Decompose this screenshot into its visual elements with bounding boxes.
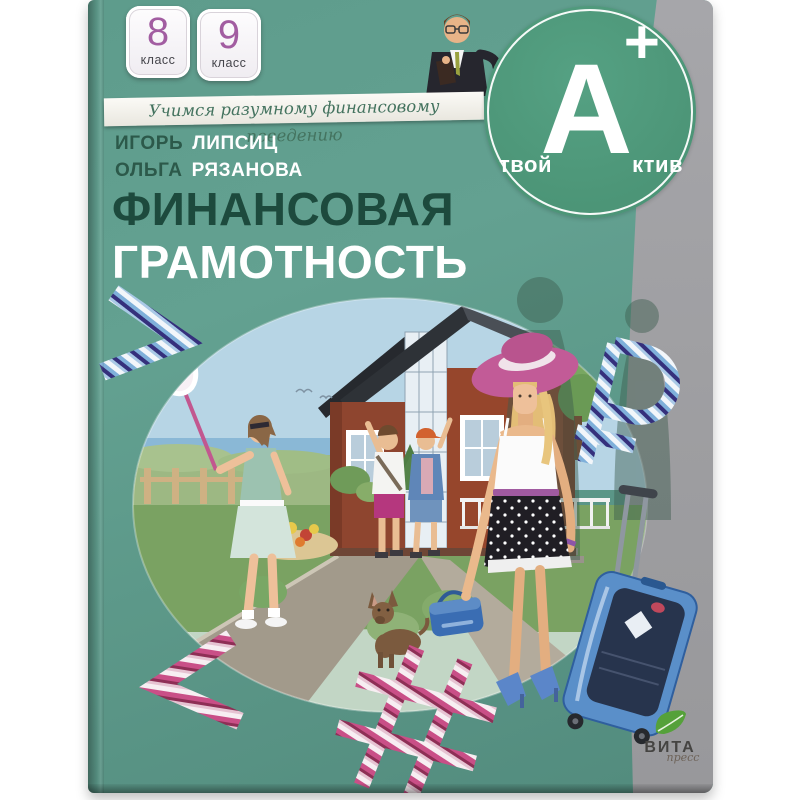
vita-press-logo: ВИТА пресс bbox=[626, 708, 713, 764]
author-first-name: ИГОРЬ bbox=[115, 133, 183, 154]
author-first-name: ОЛЬГА bbox=[115, 160, 183, 181]
logo-suffix: ктив bbox=[632, 152, 683, 178]
author-last-name: РЯЗАНОВА bbox=[192, 160, 303, 181]
book-title: ФИНАНСОВАЯ ГРАМОТНОСТЬ bbox=[112, 183, 468, 289]
chevron-top-left-symbol: > bbox=[102, 293, 188, 383]
head bbox=[444, 17, 470, 43]
logo-plus: + bbox=[624, 12, 660, 74]
tvoy-aktiv-logo: твой А + ктив bbox=[484, 6, 696, 218]
grade-badge-8: 8 класс bbox=[126, 6, 190, 78]
author-line: ОЛЬГАРЯЗАНОВА bbox=[115, 157, 303, 184]
grade-badge-9: 9 класс bbox=[197, 9, 261, 81]
grade-label: класс bbox=[126, 53, 190, 67]
title-line-2: ГРАМОТНОСТЬ bbox=[112, 236, 468, 289]
grade-badges: 8 класс 9 класс bbox=[126, 6, 261, 81]
authors-block: ИГОРЬЛИПСИЦ ОЛЬГАРЯЗАНОВА bbox=[115, 130, 303, 184]
grade-label: класс bbox=[197, 56, 261, 70]
product-photo: > ₽ < # bbox=[0, 0, 800, 800]
purple-belt bbox=[493, 489, 559, 496]
grade-number: 8 bbox=[126, 11, 190, 53]
grade-number: 9 bbox=[197, 14, 261, 56]
logo-letter-a: А bbox=[540, 46, 632, 174]
face bbox=[513, 382, 537, 414]
author-last-name: ЛИПСИЦ bbox=[192, 133, 278, 154]
title-line-1: ФИНАНСОВАЯ bbox=[112, 183, 468, 236]
author-line: ИГОРЬЛИПСИЦ bbox=[115, 130, 303, 157]
leaf-icon bbox=[652, 708, 688, 736]
book-cover: > ₽ < # bbox=[88, 0, 713, 793]
